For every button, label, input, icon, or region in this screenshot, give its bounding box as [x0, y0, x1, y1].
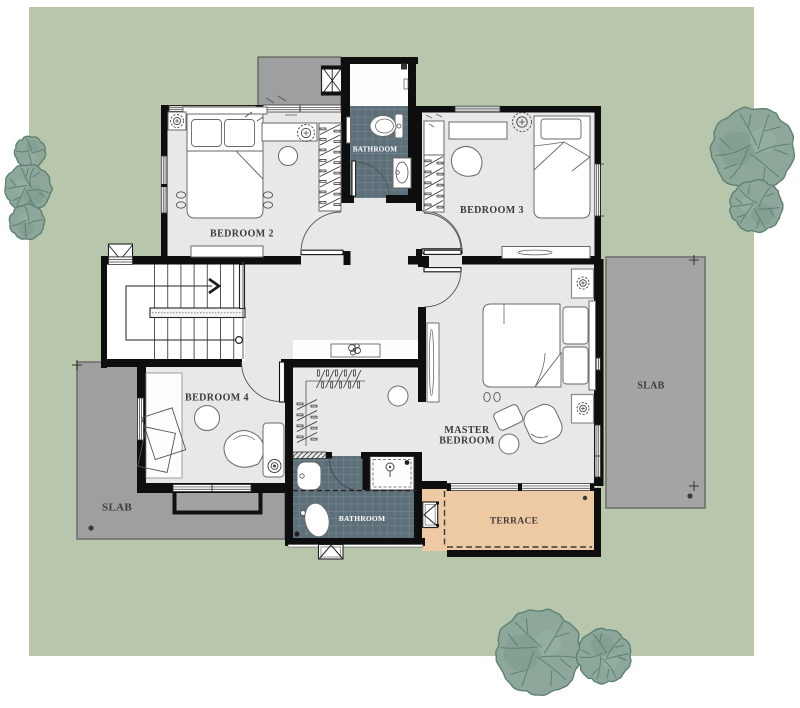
svg-text:BEDROOM 4: BEDROOM 4 [185, 393, 249, 404]
svg-text:SLAB: SLAB [637, 381, 664, 392]
svg-text:TERRACE: TERRACE [490, 517, 539, 527]
svg-text:BEDROOM 3: BEDROOM 3 [460, 205, 524, 216]
svg-text:BEDROOM 2: BEDROOM 2 [210, 229, 274, 240]
svg-text:MASTER: MASTER [444, 425, 490, 436]
svg-text:BATHROOM: BATHROOM [353, 146, 398, 154]
svg-text:BEDROOM: BEDROOM [439, 436, 495, 447]
svg-text:SLAB: SLAB [102, 502, 132, 514]
svg-text:BATHROOM: BATHROOM [339, 514, 385, 523]
